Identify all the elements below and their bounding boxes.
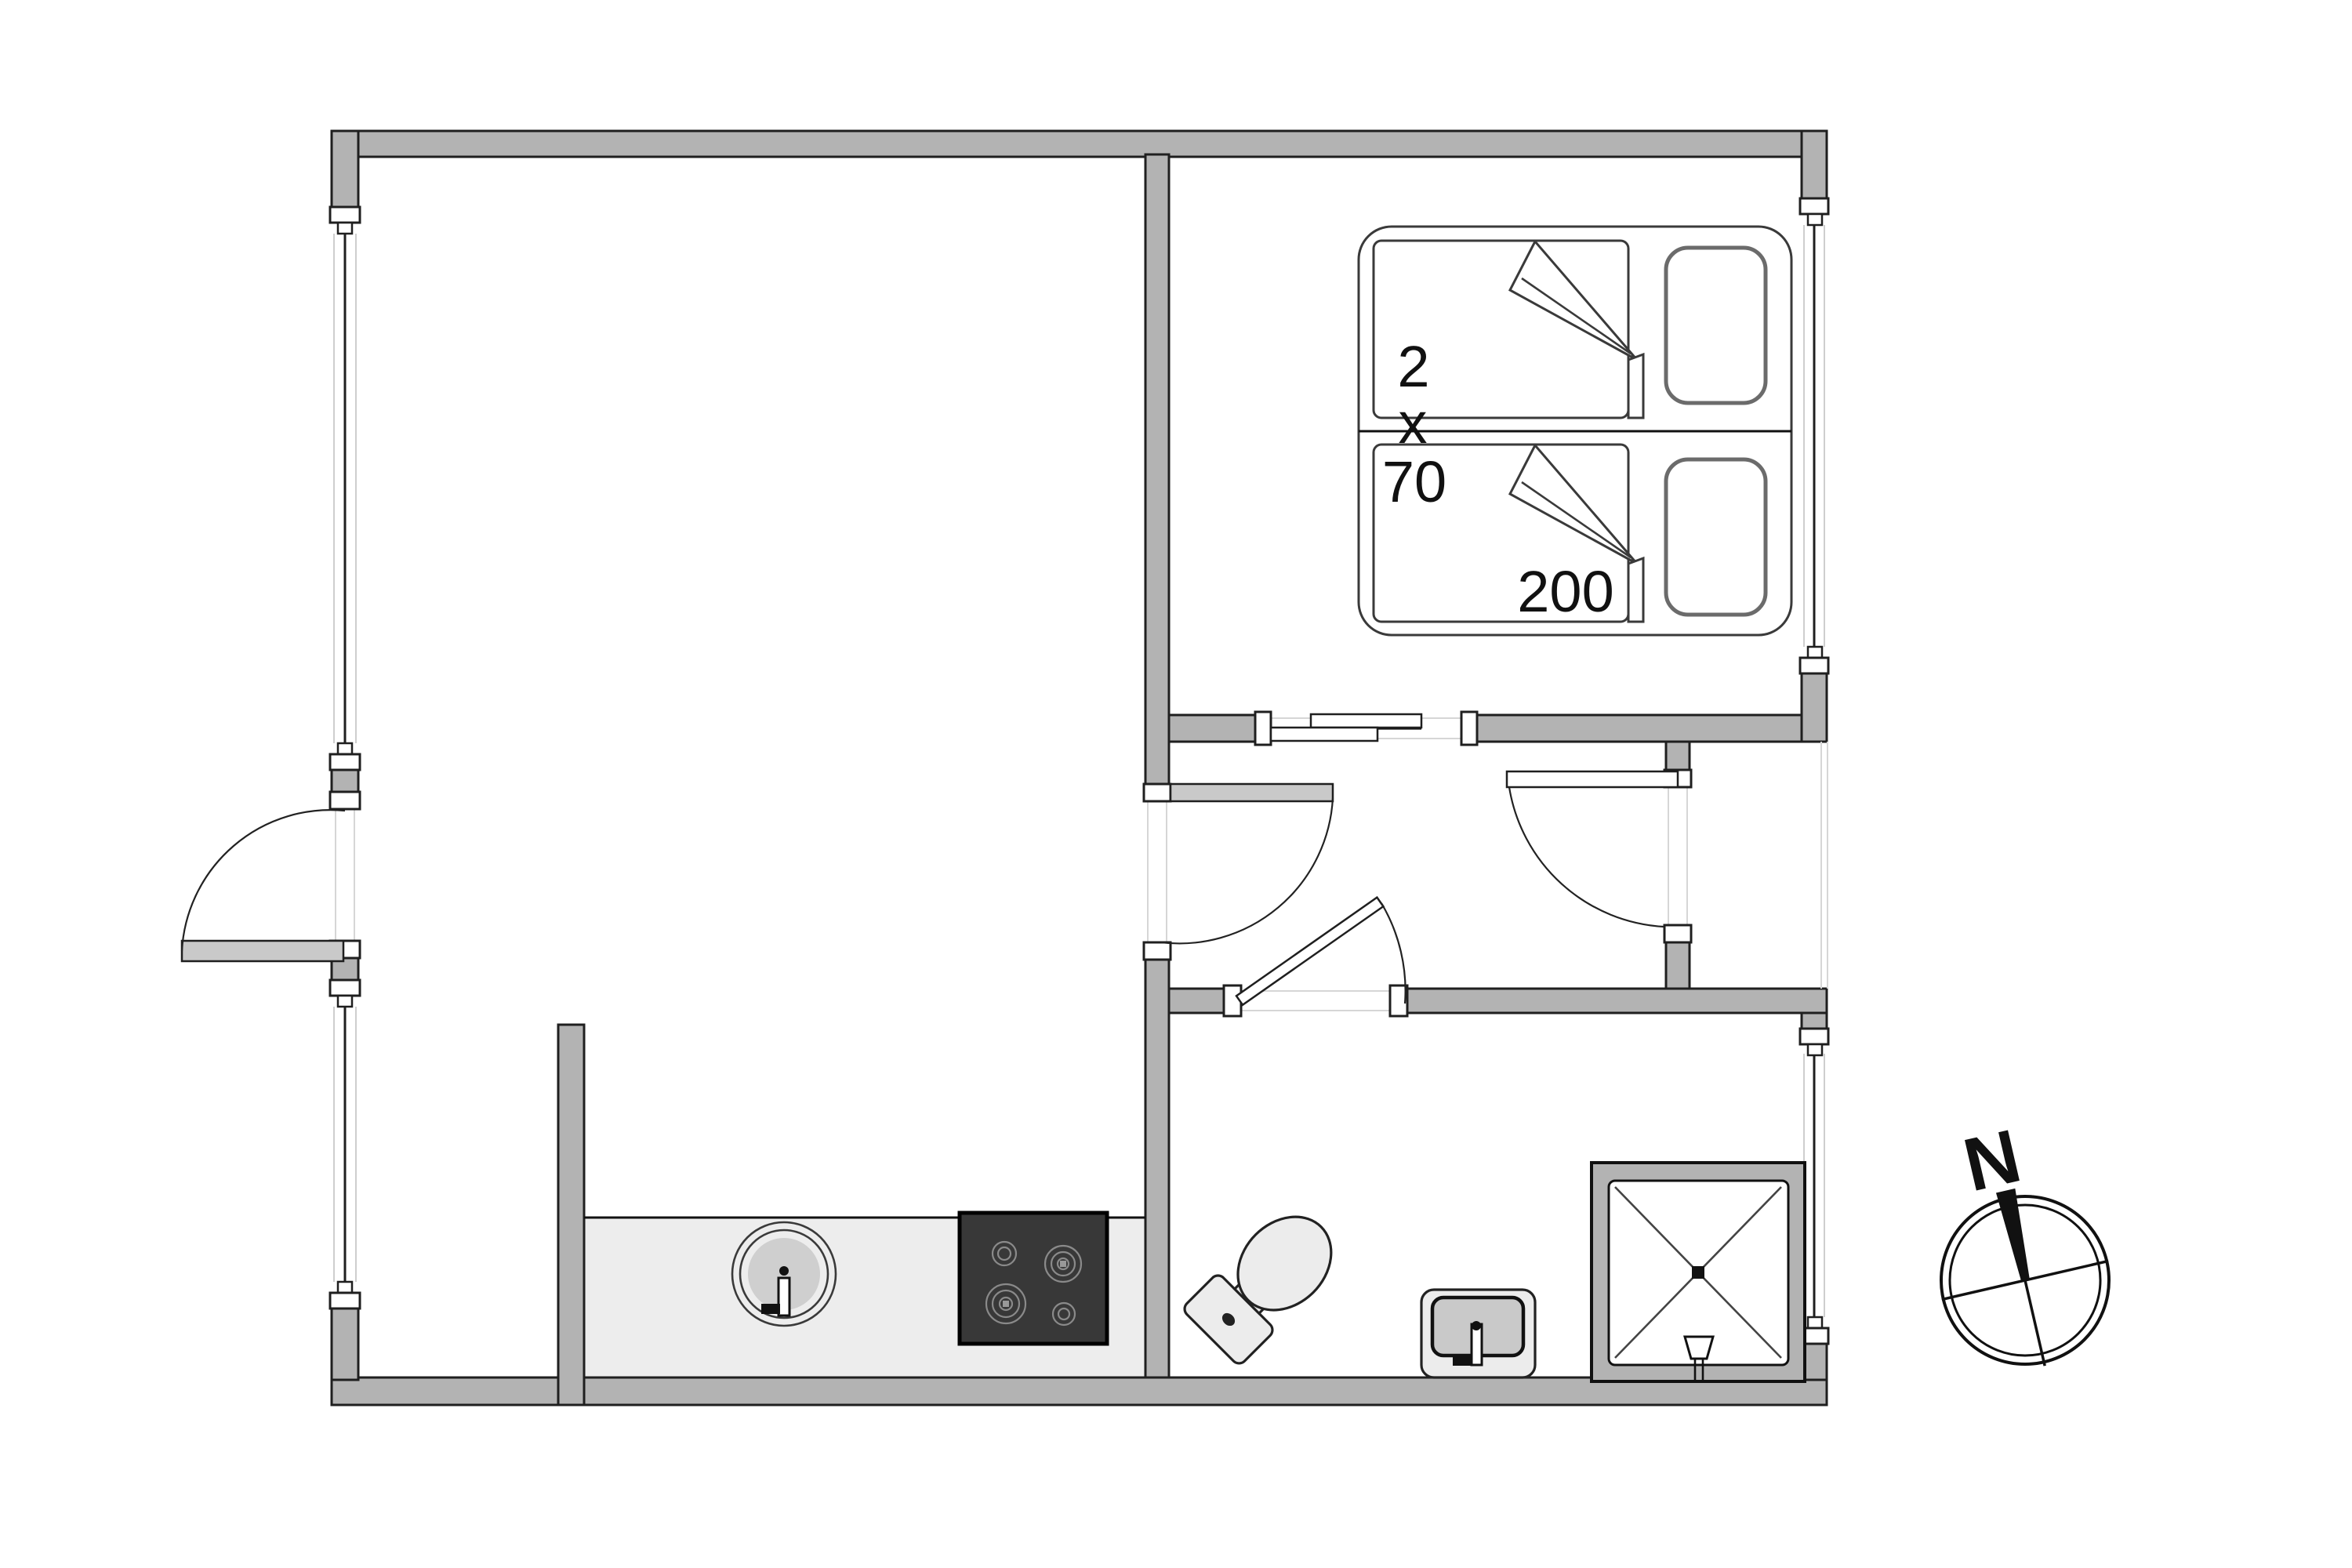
- door-exterior-west: [182, 792, 360, 961]
- bed-length-label: 200: [1517, 559, 1613, 624]
- door-leaf: [1171, 784, 1333, 801]
- twin-beds: 2 x 70 200: [1359, 227, 1791, 635]
- bathroom-area: [1181, 1163, 1805, 1381]
- door-entry-niche: [1507, 770, 1691, 942]
- door-swing-arc: [1509, 787, 1664, 927]
- compass-rose: N: [1921, 1114, 2128, 1385]
- bed-1: [1374, 241, 1766, 418]
- floor-plan-page: 2 x 70 200 N: [0, 0, 2352, 1568]
- bed-width-label: 70: [1382, 449, 1446, 514]
- door-bedroom-sliding: [1255, 712, 1477, 745]
- wall-east-segment: [1802, 671, 1827, 742]
- stove-icon: [960, 1213, 1107, 1344]
- shower-icon: [1592, 1163, 1805, 1381]
- toilet-icon: [1181, 1198, 1350, 1367]
- wall-east-segment: [1802, 131, 1827, 200]
- pillow: [1666, 459, 1766, 615]
- bed-times-label: x: [1399, 390, 1428, 456]
- pillow: [1666, 248, 1766, 403]
- door-swing-arc: [1161, 798, 1333, 943]
- wall-north: [332, 131, 1827, 157]
- door-leaf: [1507, 771, 1678, 787]
- door-leaf: [1236, 898, 1383, 1005]
- window-west-upper: [330, 207, 360, 770]
- shower-drain: [1685, 1337, 1713, 1359]
- wall-entry-upper: [1666, 742, 1690, 770]
- compass-needle-icon: [1996, 1189, 2036, 1283]
- entry-niche-boundary: [1821, 742, 1828, 989]
- wall-kitchen-partition: [558, 1025, 584, 1405]
- door-leaf: [182, 941, 343, 961]
- wall-west-segment: [332, 1305, 358, 1380]
- window-east-bedroom: [1800, 198, 1828, 673]
- wall-bedroom-south-left: [1169, 715, 1257, 742]
- door-living-hall: [1144, 784, 1333, 960]
- wall-bedroom-south-right: [1477, 715, 1802, 742]
- wall-living-divider-upper: [1145, 154, 1169, 784]
- bed-count-label: 2: [1397, 334, 1429, 399]
- floor-plan-drawing: 2 x 70 200 N: [0, 0, 2352, 1568]
- door-bathroom: [1224, 898, 1407, 1016]
- window-west-lower: [330, 980, 360, 1308]
- wall-living-divider-lower: [1145, 960, 1169, 1377]
- sliding-panel-lower: [1271, 728, 1377, 741]
- wall-entry-lower: [1666, 942, 1690, 989]
- door-swing-arc: [182, 810, 345, 951]
- sliding-panel-upper: [1311, 714, 1421, 728]
- bathroom-sink-icon: [1421, 1290, 1535, 1377]
- wall-bathroom-north-left: [1169, 989, 1225, 1013]
- compass-north-label: N: [1956, 1114, 2028, 1208]
- wall-bathroom-north-right: [1407, 989, 1827, 1013]
- wall-west-segment: [332, 131, 358, 210]
